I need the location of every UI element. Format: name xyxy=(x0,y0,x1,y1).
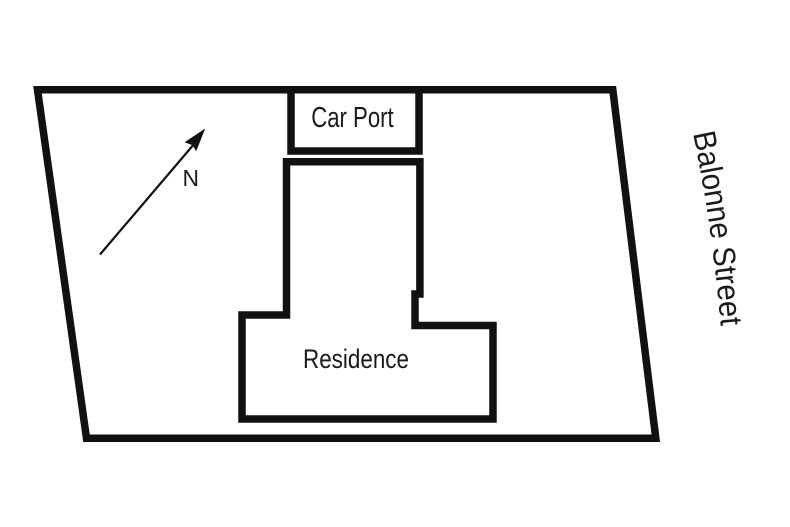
svg-text:Balonne Street: Balonne Street xyxy=(686,128,750,328)
svg-text:Residence: Residence xyxy=(303,344,409,374)
svg-text:Car Port: Car Port xyxy=(311,102,394,134)
svg-text:N: N xyxy=(183,165,200,191)
